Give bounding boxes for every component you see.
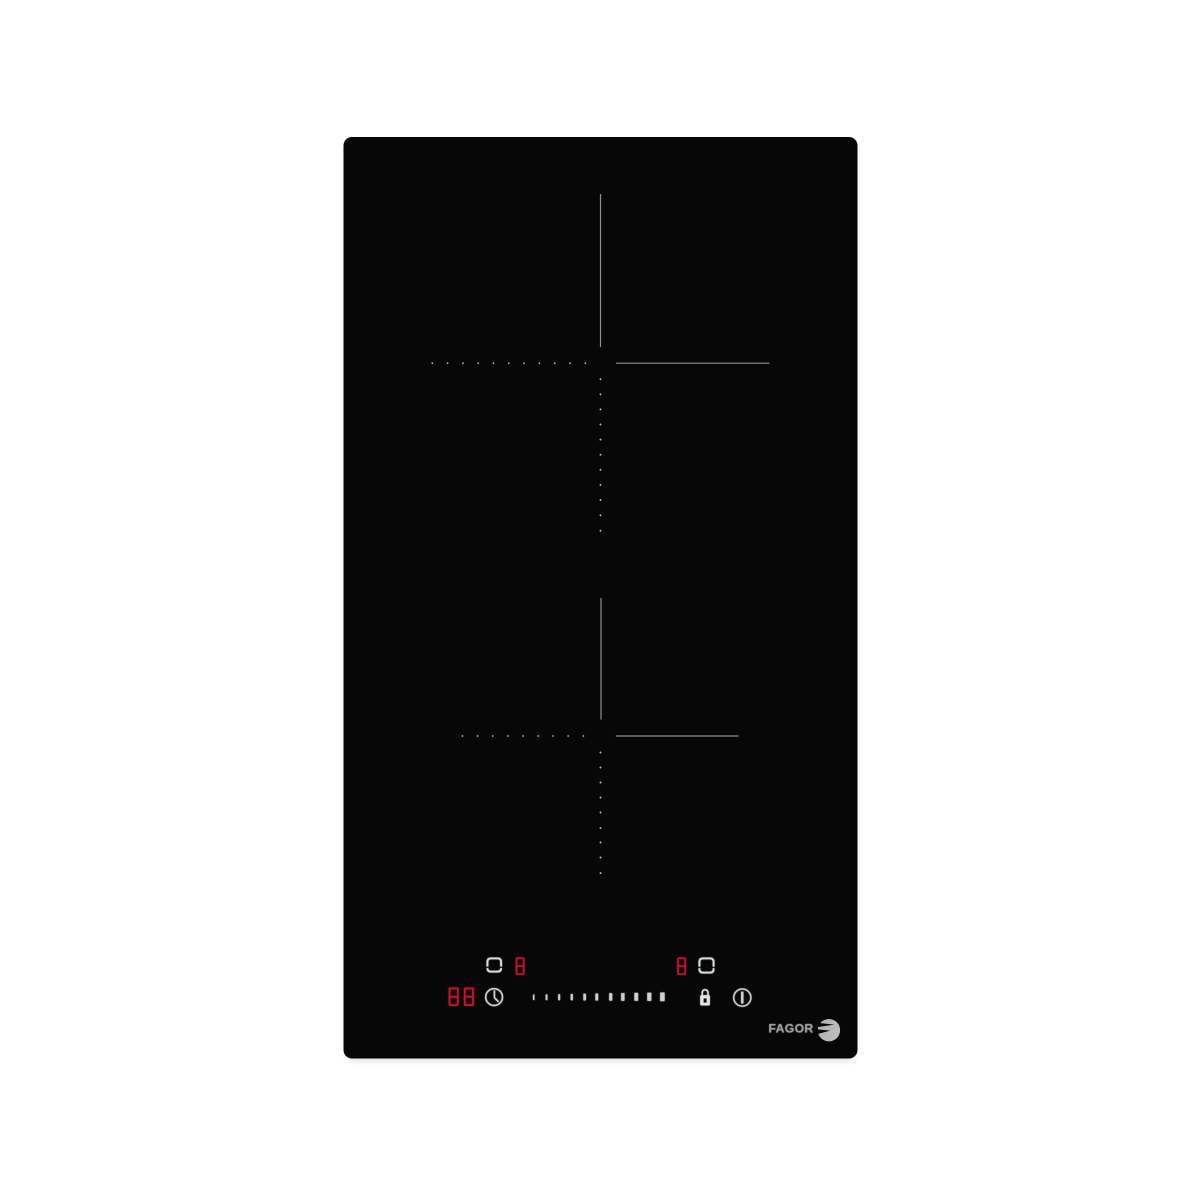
svg-text:FAGOR: FAGOR	[769, 1021, 814, 1035]
